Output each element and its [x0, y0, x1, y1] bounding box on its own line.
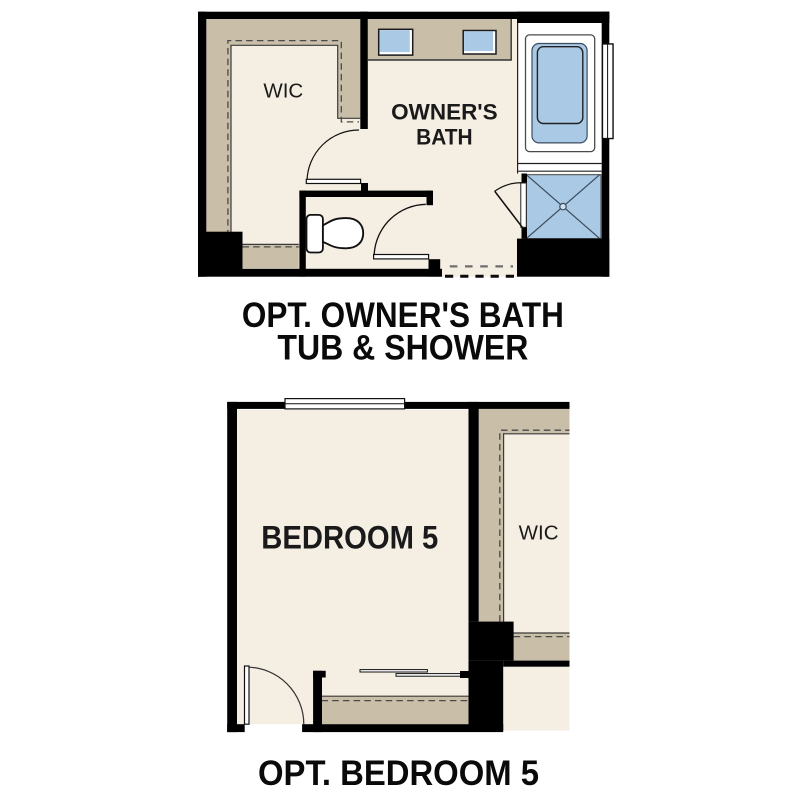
svg-text:WIC: WIC	[263, 79, 303, 102]
svg-text:OWNER'S: OWNER'S	[391, 100, 498, 125]
svg-text:TUB & SHOWER: TUB & SHOWER	[277, 329, 528, 368]
svg-text:BATH: BATH	[416, 125, 473, 150]
svg-text:BEDROOM 5: BEDROOM 5	[261, 520, 438, 556]
svg-text:OPT. BEDROOM 5: OPT. BEDROOM 5	[258, 754, 539, 793]
svg-text:WIC: WIC	[519, 522, 559, 545]
